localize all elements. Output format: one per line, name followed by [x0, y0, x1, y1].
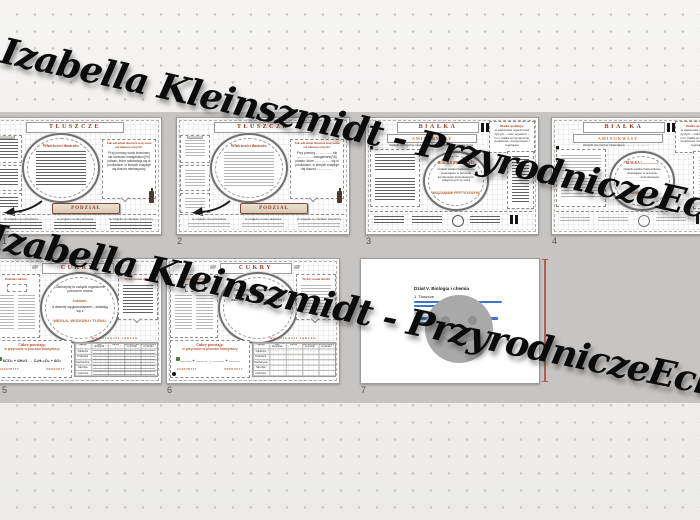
table-row-name: Celuloza	[75, 372, 91, 375]
side-body: Przy pomocy .................. lub .....…	[294, 151, 340, 172]
pause-bars-icon	[667, 123, 675, 132]
bottom-sub: w przyrodzie w procesie fotosyntezy	[171, 347, 249, 351]
footer-label: ze względu na charakter chemiczny	[108, 217, 154, 221]
properties-oval: Właściwości tłuszczów	[22, 133, 100, 203]
molecule-icon	[638, 215, 650, 227]
table-col-header: Rozpuszczalność w etanolu	[319, 344, 335, 349]
substraty-label: SUBSTRATY	[177, 368, 197, 371]
slide-number-3: 3	[366, 236, 371, 246]
table-col-header: Barwa	[286, 344, 302, 346]
table-col-header: Stan skupienia	[269, 344, 285, 349]
leaf-icon	[294, 265, 300, 269]
footer-label: ze względu na charakter chemiczny	[296, 217, 342, 221]
left-note-box	[180, 135, 210, 163]
circle-heading: BIAŁKA (.................)	[611, 161, 673, 165]
equation: .......... + .......... → .......... + .…	[171, 358, 249, 363]
slide-number-4: 4	[552, 236, 557, 246]
text-lines-placeholder	[242, 223, 284, 229]
text-lines-placeholder	[412, 216, 442, 224]
text-lines-placeholder	[185, 140, 205, 158]
bottle-icon	[149, 191, 154, 203]
text-lines-placeholder	[188, 223, 230, 229]
table-row-name: Glukoza	[75, 350, 91, 353]
text-lines-placeholder	[175, 295, 192, 329]
slide-number-5: 5	[2, 385, 7, 395]
table-col-header: Stan skupienia	[91, 344, 107, 349]
pause-bars-icon	[481, 123, 489, 132]
equation: 6CO₂ + 6H₂O → C₆H₁₂O₆ + 6O₂	[0, 358, 71, 363]
table-row-name: Sacharoza	[75, 361, 91, 364]
text-lines-placeholder	[298, 223, 340, 229]
links-heading: Dział V. Biologia i chemia	[414, 286, 514, 291]
table-row-name: Skrobia	[75, 366, 91, 369]
corner-info-box: Białka spełniają: w większości organizmó…	[675, 121, 700, 153]
tree-root-box	[7, 284, 27, 292]
properties-oval: Właściwości tłuszczów	[210, 133, 288, 203]
text-lines-placeholder	[0, 169, 18, 187]
side-heading: Jak odróżnić tłuszcze nasycone od nienas…	[105, 142, 153, 150]
photosynthesis-box: Cukry powstają: w przyrodzie w procesie …	[170, 340, 250, 378]
podzial-banner: PODZIAŁ TŁUSZCZÓW	[240, 203, 308, 214]
side-question-box: Jak odróżnić tłuszcze nasycone od nienas…	[290, 139, 344, 199]
tree-heading: Podział cukrów	[0, 277, 39, 281]
table-col-header: Nazwa	[253, 344, 269, 346]
bottom-equation-strip	[370, 211, 532, 229]
slide-thumbnail-1[interactable]: TŁUSZCZE Właściwości tłuszczów Jak odróż…	[0, 117, 162, 235]
slide-number-6: 6	[167, 385, 172, 395]
produkty-label: PRODUKTY	[224, 368, 243, 371]
table-title: Właściwości cukrów	[74, 336, 156, 340]
footer-label: ze względu na pochodzenie	[186, 217, 232, 221]
circle-em2: WĘGLA, WODORU i TLENU.	[46, 318, 114, 323]
table-row-name: Celuloza	[253, 372, 269, 375]
bottle-icon	[337, 191, 342, 203]
classification-tree-box: Podział cukrów	[0, 274, 40, 338]
left-note-box	[180, 165, 210, 191]
footer-label: ze względu na stan skupienia	[52, 217, 98, 221]
text-lines-placeholder	[224, 152, 274, 186]
table-col-header: Barwa	[108, 344, 124, 346]
circle-mid: a dawniej węglowodanami – składają się z	[52, 305, 108, 314]
text-lines-placeholder	[18, 295, 35, 329]
substraty-label: SUBSTRATY	[0, 368, 19, 371]
text-lines-placeholder	[470, 216, 500, 224]
side-question-box: Jak odróżnić tłuszcze nasycone od nienas…	[102, 139, 156, 199]
table-col-header: Rozpuszczalność w wodzie	[302, 344, 318, 349]
podzial-banner: PODZIAŁ TŁUSZCZÓW	[52, 203, 120, 214]
text-lines-placeholder	[375, 178, 415, 200]
text-lines-placeholder	[560, 217, 590, 223]
text-lines-placeholder	[36, 151, 86, 187]
side-body: Przy pomocy wody bromowej lub roztworu m…	[106, 151, 152, 171]
text-lines-placeholder	[185, 170, 205, 186]
text-lines-placeholder	[0, 139, 18, 159]
corner-body: w większości organizmów żywych – nasz or…	[679, 129, 700, 148]
properties-table: Nazwa Stan skupienia Barwa Rozpuszczalno…	[74, 342, 158, 377]
subtitle-note: Związki chemiczne zawierające ..........…	[567, 143, 667, 147]
table-row-name: Glukoza	[253, 350, 269, 353]
definition-circle: Sacharydy to związki organiczne potoczni…	[40, 272, 120, 344]
oval-heading: Właściwości tłuszczów	[212, 144, 286, 148]
worksheet-title: BIAŁKA	[583, 122, 665, 133]
text-lines-placeholder	[93, 350, 155, 376]
bottom-section: ze względu na pochodzenie ze względu na …	[180, 214, 344, 231]
left-note-box	[0, 165, 22, 191]
molecule-icon	[452, 215, 464, 227]
table-col-header: Rozpuszczalność w etanolu	[141, 344, 157, 349]
tape-icon	[187, 135, 203, 139]
text-lines-placeholder	[374, 216, 404, 224]
corner-dot	[172, 372, 176, 376]
text-lines-placeholder	[54, 222, 96, 229]
slide-number-2: 2	[177, 236, 182, 246]
table-row-name: Fruktoza	[75, 355, 91, 358]
left-note-box	[0, 135, 22, 163]
properties-table: Nazwa Stan skupienia Barwa Rozpuszczalno…	[252, 342, 336, 377]
circle-em1: cukrami,	[42, 299, 118, 303]
slide-number-7: 7	[361, 385, 366, 395]
text-lines-placeholder	[598, 217, 628, 223]
oval-heading: Właściwości tłuszczów	[24, 144, 98, 148]
text-lines-placeholder	[110, 222, 152, 229]
worksheet-title: TŁUSZCZE	[26, 122, 124, 133]
table-col-header: Nazwa	[75, 344, 91, 346]
table-col-header: Rozpuszczalność w wodzie	[124, 344, 140, 349]
text-lines-placeholder	[0, 295, 14, 329]
table-title: Właściwości cukrów	[252, 336, 334, 340]
table-row-name: Skrobia	[253, 366, 269, 369]
circle-emphasis: WIĄZANIAMI PEPTYDOWYMI	[425, 191, 487, 195]
worksheet-tluszcze-filled: TŁUSZCZE Właściwości tłuszczów Jak odróż…	[0, 119, 160, 233]
footer-label: ze względu na stan skupienia	[240, 217, 286, 221]
produkty-label: PRODUKTY	[46, 368, 65, 371]
table-row-name: Sacharoza	[253, 361, 269, 364]
photosynthesis-box: Cukry powstają: w przyrodzie w procesie …	[0, 340, 72, 378]
circle-lead: Sacharydy to związki organiczne potoczni…	[52, 285, 108, 294]
bottom-sub: w przyrodzie w procesie fotosyntezy	[0, 347, 71, 351]
pause-bars-icon	[510, 215, 518, 224]
table-row-name: Fruktoza	[253, 355, 269, 358]
corner-mark	[556, 146, 559, 149]
